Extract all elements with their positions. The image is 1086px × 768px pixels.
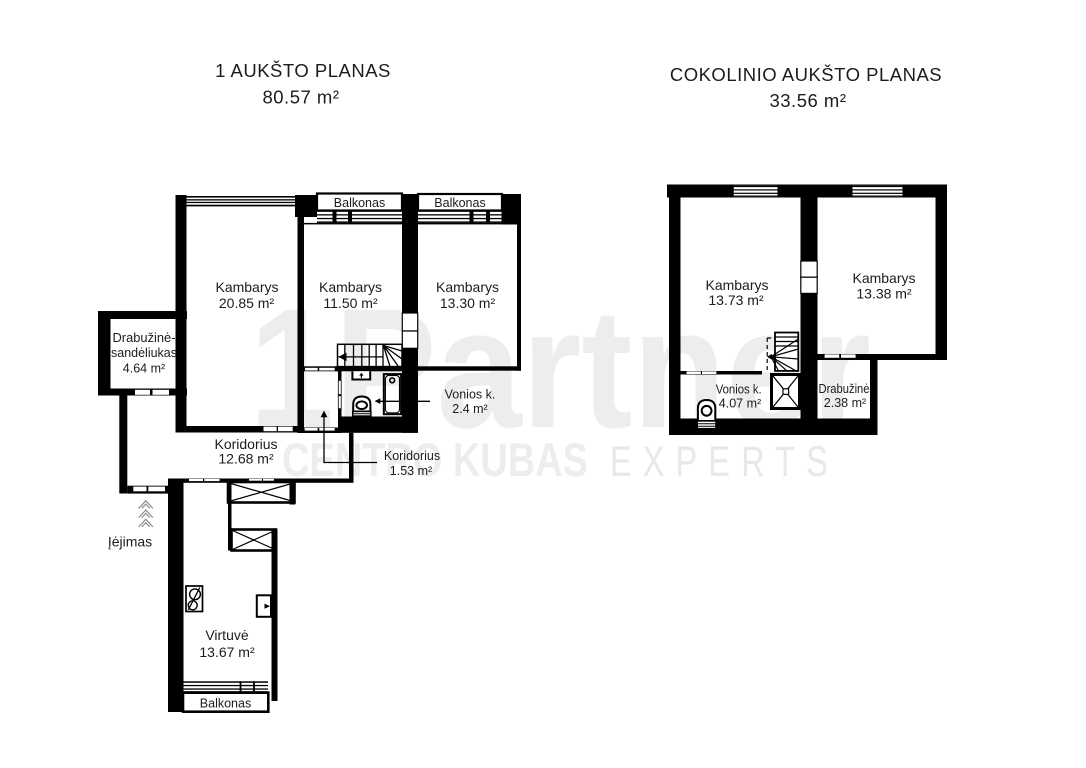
svg-text:Įėjimas: Įėjimas bbox=[108, 534, 152, 550]
svg-text:Drabužinė-: Drabužinė- bbox=[113, 331, 176, 345]
svg-text:20.85 m²: 20.85 m² bbox=[219, 295, 275, 311]
svg-text:2.38 m²: 2.38 m² bbox=[824, 396, 866, 410]
svg-text:Kambarys: Kambarys bbox=[852, 270, 915, 286]
svg-text:sandėliukas: sandėliukas bbox=[111, 346, 177, 360]
svg-text:2.4 m²: 2.4 m² bbox=[452, 402, 487, 416]
svg-text:COKOLINIO AUKŠTO PLANAS: COKOLINIO AUKŠTO PLANAS bbox=[670, 64, 942, 85]
svg-text:Drabužinė: Drabužinė bbox=[819, 382, 870, 396]
svg-text:Balkonas: Balkonas bbox=[334, 196, 385, 210]
svg-text:13.30 m²: 13.30 m² bbox=[440, 295, 496, 311]
svg-text:13.73 m²: 13.73 m² bbox=[708, 292, 764, 308]
svg-text:4.64 m²: 4.64 m² bbox=[123, 362, 165, 376]
svg-text:33.56 m²: 33.56 m² bbox=[769, 90, 846, 111]
svg-text:Vonios k.: Vonios k. bbox=[445, 388, 496, 402]
svg-text:12.68 m²: 12.68 m² bbox=[218, 451, 274, 467]
svg-text:EXPERTS: EXPERTS bbox=[610, 438, 839, 486]
svg-text:4.07 m²: 4.07 m² bbox=[719, 396, 761, 410]
svg-text:1 AUKŠTO PLANAS: 1 AUKŠTO PLANAS bbox=[215, 60, 391, 81]
svg-text:80.57 m²: 80.57 m² bbox=[262, 87, 339, 108]
svg-text:Balkonas: Balkonas bbox=[200, 697, 251, 711]
svg-text:Balkonas: Balkonas bbox=[434, 196, 485, 210]
svg-text:13.38 m²: 13.38 m² bbox=[856, 286, 912, 302]
svg-text:Virtuvė: Virtuvė bbox=[205, 627, 249, 643]
svg-text:Kambarys: Kambarys bbox=[705, 277, 768, 293]
svg-text:Kambarys: Kambarys bbox=[436, 279, 499, 295]
svg-text:Koridorius: Koridorius bbox=[384, 449, 440, 463]
svg-text:1.53 m²: 1.53 m² bbox=[390, 464, 432, 478]
svg-text:Vonios k.: Vonios k. bbox=[716, 383, 762, 397]
svg-text:11.50 m²: 11.50 m² bbox=[323, 295, 378, 311]
svg-text:13.67 m²: 13.67 m² bbox=[199, 644, 255, 660]
svg-text:Kambarys: Kambarys bbox=[319, 279, 382, 295]
svg-text:Kambarys: Kambarys bbox=[215, 279, 278, 295]
